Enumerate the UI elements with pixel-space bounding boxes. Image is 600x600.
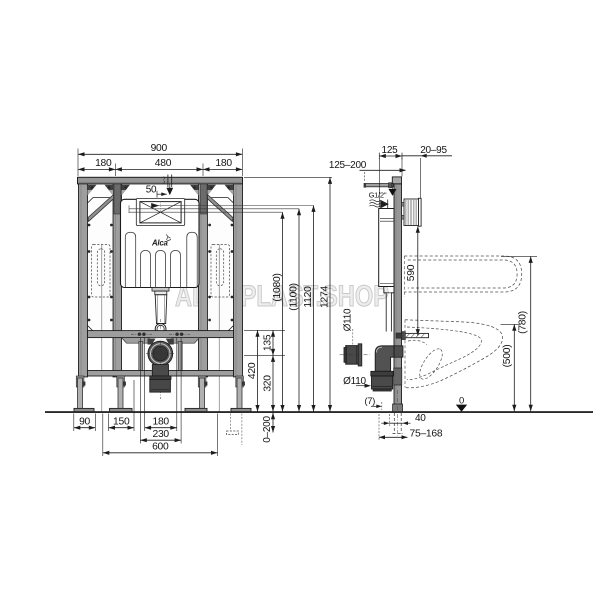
svg-text:(500): (500) xyxy=(502,345,513,368)
svg-text:G1/2": G1/2" xyxy=(369,190,387,199)
svg-text:125–200: 125–200 xyxy=(329,160,367,171)
svg-text:(1100): (1100) xyxy=(288,283,299,311)
svg-text:20–95: 20–95 xyxy=(420,145,447,156)
svg-text:90: 90 xyxy=(79,416,90,427)
svg-text:135: 135 xyxy=(262,334,273,351)
svg-text:320: 320 xyxy=(262,375,273,392)
svg-text:0–200: 0–200 xyxy=(262,416,273,443)
svg-text:180: 180 xyxy=(215,158,232,169)
svg-text:1274: 1274 xyxy=(319,286,330,308)
svg-text:(7): (7) xyxy=(365,396,376,406)
svg-text:(780): (780) xyxy=(518,311,529,334)
svg-text:480: 480 xyxy=(155,158,172,169)
svg-text:(1080): (1080) xyxy=(272,273,283,301)
svg-text:50: 50 xyxy=(146,185,157,196)
svg-text:180: 180 xyxy=(95,158,112,169)
svg-text:1120: 1120 xyxy=(303,286,314,308)
svg-text:Alca: Alca xyxy=(151,238,169,247)
svg-text:590: 590 xyxy=(406,264,417,281)
svg-text:150: 150 xyxy=(113,416,130,427)
svg-text:40: 40 xyxy=(415,413,426,424)
svg-text:420: 420 xyxy=(247,362,258,379)
svg-text:230: 230 xyxy=(152,429,169,440)
svg-text:180: 180 xyxy=(152,416,169,427)
svg-text:Ø110: Ø110 xyxy=(342,308,353,331)
svg-text:600: 600 xyxy=(152,442,169,453)
svg-text:900: 900 xyxy=(151,143,168,154)
svg-text:75–168: 75–168 xyxy=(410,429,443,440)
